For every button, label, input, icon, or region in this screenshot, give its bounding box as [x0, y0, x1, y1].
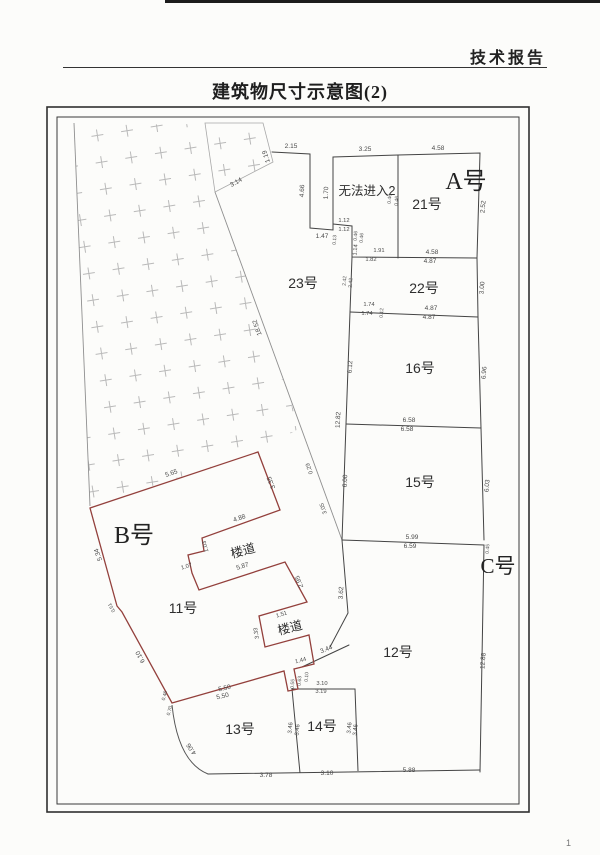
dim-label: 1.74: [363, 302, 375, 308]
dim-label: 1.47: [316, 233, 329, 240]
dim-label: 2.52: [479, 200, 487, 214]
dim-label: 0.63: [297, 676, 304, 686]
dim-label: 1.51: [275, 611, 288, 620]
dim-label: 1.82: [365, 257, 376, 263]
dim-label: 1.12: [338, 218, 349, 224]
dim-label: 0.12: [379, 308, 386, 318]
room-label-23: 23号: [288, 275, 318, 291]
room-label-15: 15号: [405, 474, 435, 490]
dim-label: 6.59: [404, 543, 417, 550]
dim-label: 3.10: [321, 770, 334, 777]
dim-label: 6.58: [403, 417, 416, 424]
dim-label: 3.10: [316, 681, 327, 687]
scanned-report-page: 技术报告 建筑物尺寸示意图(2): [0, 0, 600, 855]
dim-label: 3.25: [359, 146, 372, 153]
dim-label: 4.06: [185, 741, 198, 756]
dim-label: 0.46: [387, 194, 394, 204]
dim-label: 0.46: [359, 233, 366, 243]
dim-label: 0.45: [485, 544, 492, 554]
corridor-label-2: 楼道: [276, 617, 304, 638]
dim-label: 12.88: [479, 652, 487, 669]
dim-label: 5.99: [406, 534, 419, 541]
dim-label: 0.51: [107, 602, 117, 614]
dim-label: 0.46: [394, 196, 401, 206]
building-a-label: A号: [445, 169, 486, 195]
room-label-11: 11号: [169, 600, 198, 616]
dim-label: 1.74: [361, 311, 373, 317]
dim-label: 5.88: [403, 767, 416, 774]
dim-label: 6.58: [401, 426, 414, 433]
hatch-area: [74, 123, 300, 506]
dim-label: 2.42: [348, 278, 355, 288]
room-label-21: 21号: [412, 196, 442, 212]
dim-label: 1.91: [373, 248, 384, 254]
dim-label: 3.78: [260, 772, 273, 779]
building-b-label: B号: [114, 523, 154, 549]
room-label-16: 16号: [405, 360, 435, 376]
dim-label: 4.58: [426, 249, 439, 256]
dim-label: 1.70: [323, 186, 330, 199]
dim-label: 5.50: [216, 692, 230, 702]
dim-label: 4.66: [299, 184, 306, 197]
dim-label: 12.82: [335, 411, 343, 428]
dim-label: 3.33: [253, 627, 261, 639]
dim-label: 6.03: [483, 479, 491, 493]
dim-label: 4.87: [424, 258, 437, 265]
dim-label: 6.10: [134, 649, 146, 664]
dim-label: 1.44: [295, 657, 308, 666]
room-label-14: 14号: [307, 718, 337, 734]
dim-label: 0.29: [305, 462, 315, 475]
dim-label: 0.13: [332, 235, 339, 245]
dim-label: 1.14: [353, 243, 360, 256]
dim-label: 6.96: [480, 366, 488, 380]
dim-label: 2.15: [285, 143, 298, 150]
room-label-22: 22号: [409, 280, 439, 296]
site-plan-svg: A号 B号 C号 无法进入2 21号 23号 22号 16号 15号 12号 1…: [0, 0, 600, 855]
dim-label: 0.10: [304, 672, 311, 682]
dim-label: 6.00: [342, 474, 349, 487]
dim-label: 4.87: [423, 314, 436, 321]
dim-label: 3.05: [319, 502, 329, 515]
room-label-13: 13号: [225, 721, 255, 737]
dim-label: 1.12: [338, 227, 349, 233]
corridor-label-1: 楼道: [229, 540, 258, 561]
dim-label: 0.46: [161, 690, 169, 701]
dim-label: 3.46: [353, 724, 360, 736]
page-number: 1: [566, 838, 571, 848]
dim-label: 3.46: [288, 722, 295, 734]
building-c-label: C号: [480, 554, 515, 578]
dim-label: 3.46: [295, 724, 302, 736]
dim-label: 3.19: [315, 689, 326, 695]
dim-label: 6.12: [347, 360, 355, 373]
dim-label: 3.62: [338, 586, 346, 599]
dim-label: 5.87: [235, 561, 250, 572]
dim-label: 2.95: [294, 574, 305, 589]
dim-label: 3.00: [479, 281, 487, 294]
dim-label: 4.87: [425, 305, 438, 312]
room-label-12: 12号: [383, 644, 413, 660]
dim-label: 4.58: [432, 145, 445, 152]
dim-label: 0.55: [290, 679, 297, 689]
